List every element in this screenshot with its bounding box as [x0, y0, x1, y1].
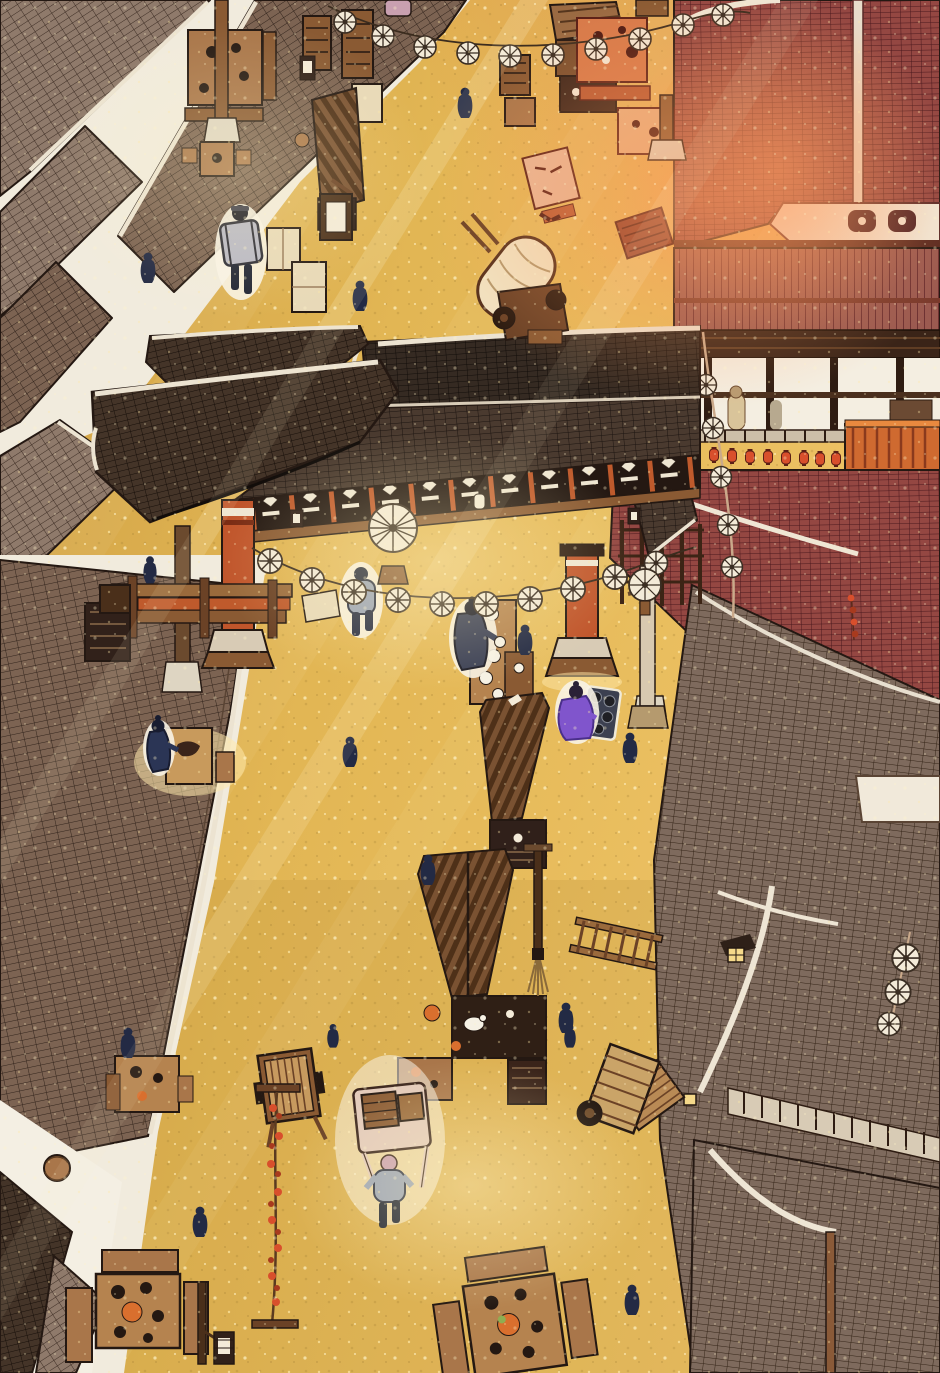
market-street-illustration: [0, 0, 940, 1373]
pink-banner: [385, 0, 411, 16]
webtoon-panel[interactable]: [0, 0, 940, 1373]
tan-mat: [302, 590, 340, 622]
red-temple-roof: [620, 0, 940, 340]
gable-gap: [856, 776, 940, 822]
pack-carrier: [215, 204, 267, 300]
purple-seller: [555, 680, 599, 744]
table-upper-bottomleft: [106, 1056, 193, 1112]
